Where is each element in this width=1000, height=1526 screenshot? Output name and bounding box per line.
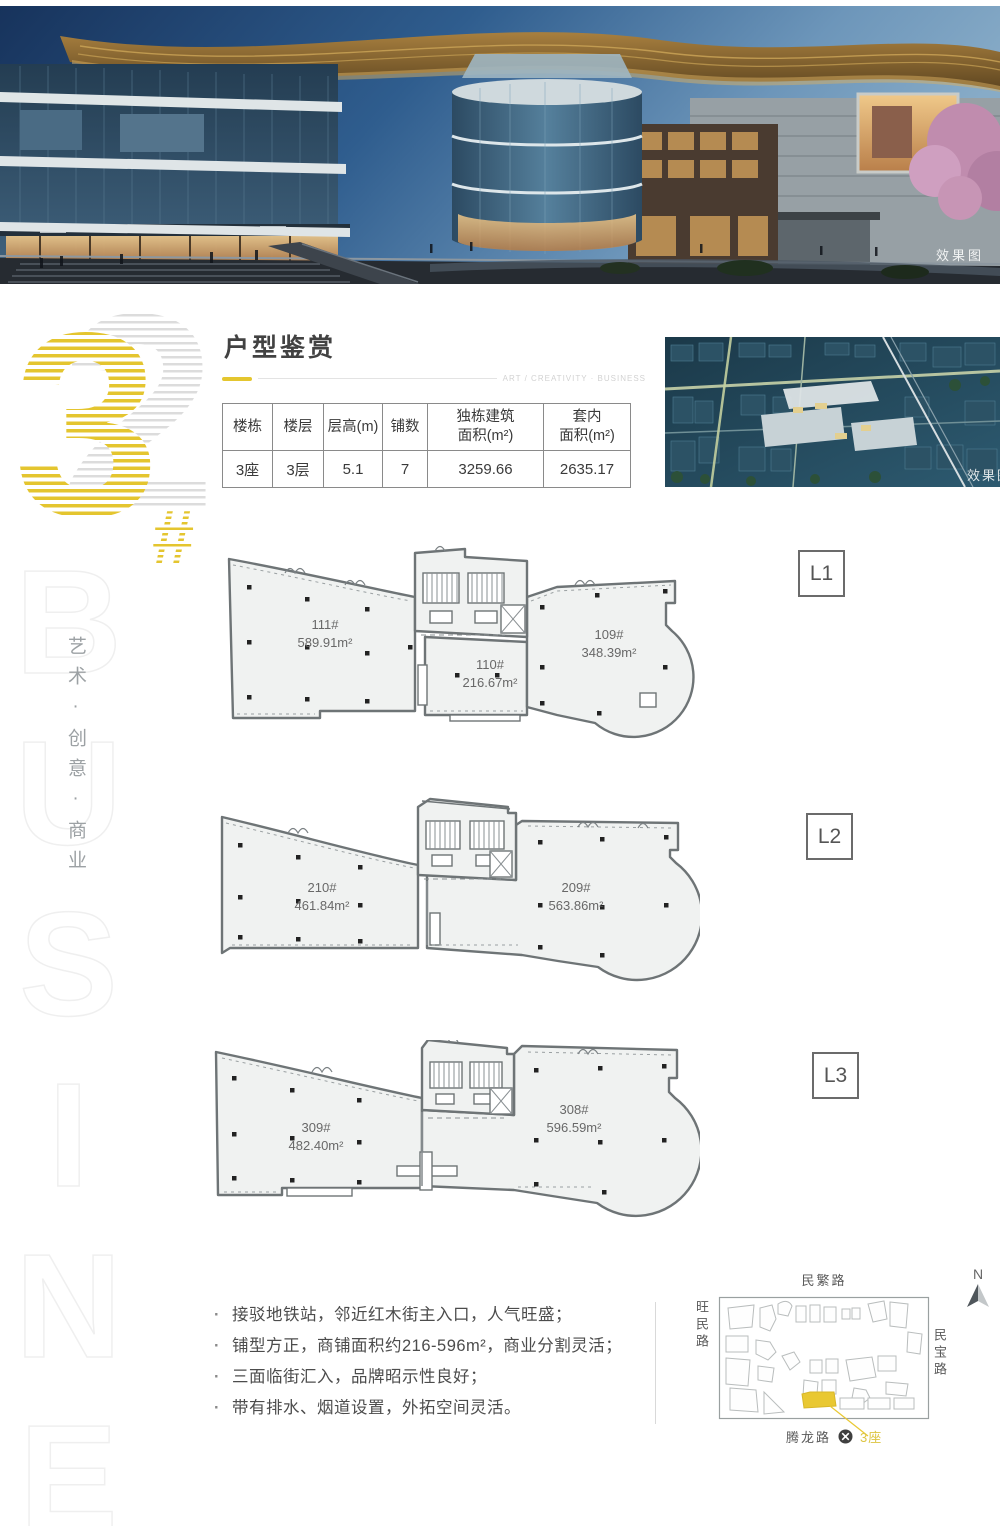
compass-needle-icon [965,1284,991,1308]
aerial-render-art: 效果图 [665,337,1000,487]
unit-id: 109# [595,627,625,642]
badge-number: 3 [14,294,160,556]
cell-shops: 7 [383,451,428,488]
spec-table-header-row: 楼栋 楼层 层高(m) 铺数 独栋建筑面积(m²) 套内面积(m²) [223,404,631,451]
hero-render-art [0,6,1000,284]
rule-line [258,378,497,379]
unit-area: 589.91m² [298,635,354,650]
unit-id: 111# [312,617,340,632]
spec-table-data-row: 3座 3层 5.1 7 3259.66 2635.17 [223,451,631,488]
floor-label-l1: L1 [798,550,845,597]
metro-icon [838,1429,853,1444]
floor-plan-l1: 111# 589.91m² 110# 216.67m² 109# 348.39m… [225,545,700,745]
unit-area: 461.84m² [295,898,351,913]
col-shops: 铺数 [383,404,428,451]
map-road-left: 旺民路 [692,1300,711,1351]
col-net-area: 套内面积(m²) [544,404,631,451]
floor-plan-l3: 309# 482.40m² 308# 596.59m² [212,1040,700,1218]
feature-item: 铺型方正，商铺面积约216-596m²，商业分割灵活； [210,1331,650,1362]
compass: N [958,1266,998,1311]
map-road-right: 民宝路 [930,1328,949,1379]
section-subtitle-en: ART / CREATIVITY · BUSINESS [503,374,646,383]
cell-floor: 3层 [273,451,324,488]
cell-net-area: 2635.17 [544,451,631,488]
floor-label-l2: L2 [806,813,853,860]
unit-id: 209# [562,880,592,895]
col-height: 层高(m) [324,404,383,451]
vertical-tagline: 艺术·创意·商业 [62,636,89,880]
map-bottom-row: 腾龙路 3座 [786,1427,882,1446]
cell-height: 5.1 [324,451,383,488]
floor-plan-l2: 210# 461.84m² 209# 563.86m² [218,795,700,990]
map-road-bottom: 腾龙路 [786,1427,831,1446]
unit-area: 216.67m² [463,675,519,690]
feature-item: 接驳地铁站，邻近红木街主入口，人气旺盛； [210,1300,650,1331]
title-rule: ART / CREATIVITY · BUSINESS [222,374,646,383]
unit-id: 309# [302,1120,332,1135]
unit-id: 110# [476,657,505,672]
map-building-marker: 3座 [860,1427,882,1446]
feature-list: 接驳地铁站，邻近红木街主入口，人气旺盛； 铺型方正，商铺面积约216-596m²… [210,1300,650,1424]
location-map [718,1296,930,1446]
unit-id: 210# [308,880,338,895]
section-title: 户型鉴赏 [224,328,336,364]
feature-item: 带有排水、烟道设置，外拓空间灵活。 [210,1393,650,1424]
feature-item: 三面临街汇入，品牌昭示性良好； [210,1362,650,1393]
unit-id: 308# [560,1102,590,1117]
unit-area: 348.39m² [582,645,638,660]
cell-gross-area: 3259.66 [428,451,544,488]
floor-label-l3: L3 [812,1052,859,1099]
spec-table: 楼栋 楼层 层高(m) 铺数 独栋建筑面积(m²) 套内面积(m²) 3座 3层… [222,403,631,488]
unit-area: 482.40m² [289,1138,345,1153]
unit-area: 563.86m² [549,898,605,913]
brochure-page: 效果图 BUSINESS 2 3 # 艺术·创意·商业 户型鉴赏 ART / C… [0,0,1000,1526]
hero-watermark: 效果图 [936,245,984,264]
compass-n-label: N [958,1266,998,1282]
col-floor: 楼层 [273,404,324,451]
badge-hash-symbol: # [152,500,194,576]
map-highlight-building [802,1392,836,1408]
map-road-top: 民繁路 [718,1270,930,1289]
aerial-watermark: 效果图 [967,468,1000,483]
col-gross-area: 独栋建筑面积(m²) [428,404,544,451]
vertical-divider [655,1302,656,1424]
building-number-badge: 2 3 # [14,288,234,578]
unit-area: 596.59m² [547,1120,603,1135]
hero-render-image: 效果图 [0,6,1000,284]
aerial-render-image: 效果图 [665,337,1000,487]
